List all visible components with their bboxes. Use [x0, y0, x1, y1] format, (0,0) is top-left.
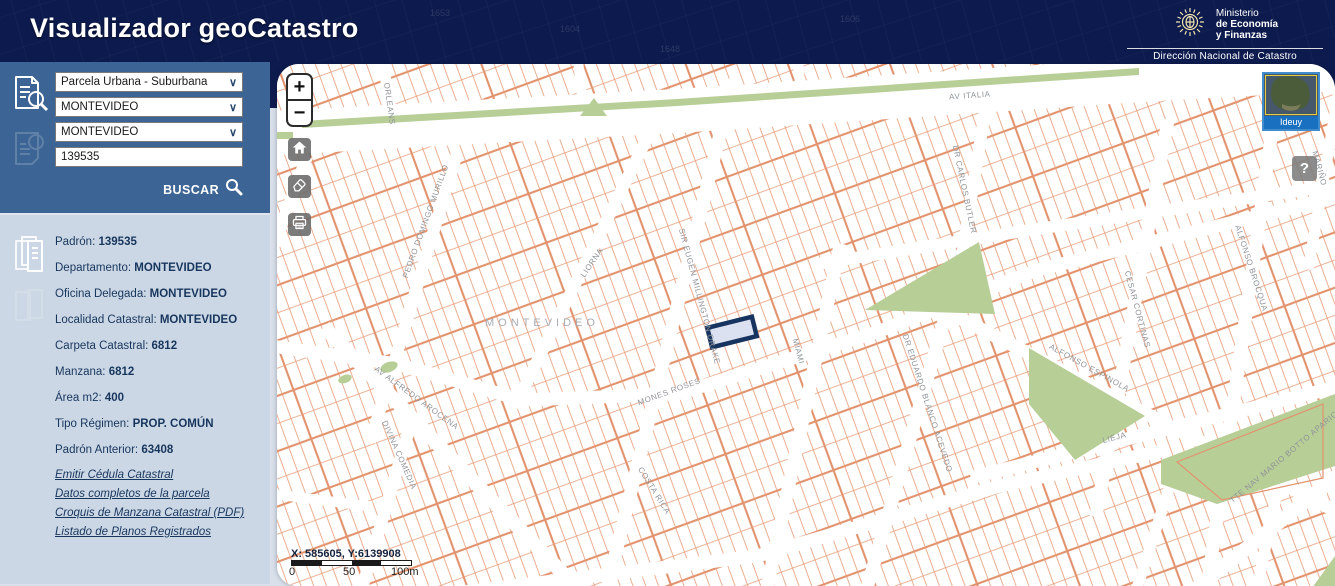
document-search-icon-reflection: [8, 118, 52, 169]
chevron-down-icon: ∨: [229, 76, 237, 89]
help-button[interactable]: ?: [1292, 156, 1317, 181]
home-icon: [291, 139, 308, 161]
info-field: Oficina Delegada: MONTEVIDEO: [55, 281, 262, 307]
parcel-info-panel: Padrón: 139535Departamento: MONTEVIDEOOf…: [0, 215, 270, 584]
info-field: Localidad Catastral: MONTEVIDEO: [55, 307, 262, 333]
padron-input[interactable]: [55, 147, 243, 167]
cadastral-map[interactable]: MONTEVIDEO ORLEANSAV ITALIAPEDRO DOMINGO…: [277, 64, 1335, 586]
info-field: Padrón: 139535: [55, 229, 262, 255]
printer-icon: [291, 214, 308, 236]
eraser-icon: [291, 176, 308, 198]
coordinates-readout: X: 585605, Y:6139908: [291, 548, 401, 560]
logo-separator: [1127, 48, 1323, 49]
ministry-logo-block: Ministerio de Economía y Finanzas Direcc…: [1125, 4, 1325, 62]
parcel-attributes: Padrón: 139535Departamento: MONTEVIDEOOf…: [55, 229, 262, 463]
home-button[interactable]: [288, 138, 311, 161]
parcel-links: Emitir Cédula CatastralDatos completos d…: [55, 466, 262, 542]
chevron-down-icon: ∨: [229, 101, 237, 114]
info-field: Área m2: 400: [55, 385, 262, 411]
zoom-out-button[interactable]: −: [288, 101, 311, 125]
direction-name: Dirección Nacional de Catastro: [1125, 51, 1325, 62]
info-field: Padrón Anterior: 63408: [55, 437, 262, 463]
info-link[interactable]: Listado de Planos Registrados: [55, 523, 262, 542]
city-label: MONTEVIDEO: [485, 317, 599, 329]
print-button[interactable]: [288, 213, 311, 236]
department-select[interactable]: MONTEVIDEO ∨: [55, 97, 243, 117]
zoom-widget: + −: [286, 73, 313, 127]
info-field: Departamento: MONTEVIDEO: [55, 255, 262, 281]
info-link[interactable]: Datos completos de la parcela: [55, 485, 262, 504]
overview-satellite-image: [1264, 74, 1318, 116]
info-field: Manzana: 6812: [55, 359, 262, 385]
uruguay-coat-of-arms-icon: [1172, 4, 1208, 45]
documents-stack-icon-reflection: [10, 281, 54, 326]
locality-value: MONTEVIDEO: [61, 126, 138, 138]
zoom-in-button[interactable]: +: [288, 75, 311, 99]
header-texture-number: 1606: [840, 14, 860, 24]
document-search-icon: [8, 72, 52, 123]
documents-stack-icon: [10, 231, 54, 282]
scale-label-end: 100m: [391, 566, 419, 578]
search-panel: Parcela Urbana - Suburbana ∨ MONTEVIDEO …: [0, 62, 270, 215]
sidebar: Parcela Urbana - Suburbana ∨ MONTEVIDEO …: [0, 62, 270, 586]
scale-label-mid: 50: [343, 566, 355, 578]
info-link[interactable]: Emitir Cédula Catastral: [55, 466, 262, 485]
buscar-button[interactable]: BUSCAR: [55, 178, 243, 201]
chevron-down-icon: ∨: [229, 126, 237, 139]
search-icon: [225, 178, 243, 201]
parcel-type-value: Parcela Urbana - Suburbana: [61, 76, 207, 88]
ministry-name: Ministerio de Economía y Finanzas: [1216, 8, 1278, 41]
overview-extent-box: [1265, 75, 1317, 115]
overview-map[interactable]: Ideuy: [1262, 72, 1320, 131]
info-link[interactable]: Croquis de Manzana Catastral (PDF): [55, 504, 262, 523]
map-container: MONTEVIDEO ORLEANSAV ITALIAPEDRO DOMINGO…: [277, 64, 1335, 586]
clear-selection-button[interactable]: [288, 175, 311, 198]
header-texture-number: 1653: [430, 8, 450, 18]
buscar-label: BUSCAR: [163, 183, 219, 197]
header-texture-number: 1604: [560, 24, 580, 34]
department-value: MONTEVIDEO: [61, 101, 138, 113]
scale-label-start: 0: [289, 566, 295, 578]
info-field: Carpeta Catastral: 6812: [55, 333, 262, 359]
app-header: 1653 1604 1648 1606 Visualizador geoCata…: [0, 0, 1335, 62]
overview-layer-label: Ideuy: [1264, 116, 1318, 129]
header-texture-number: 1648: [660, 44, 680, 54]
scale-bar: 0 50 100m: [291, 560, 431, 578]
parcel-type-select[interactable]: Parcela Urbana - Suburbana ∨: [55, 72, 243, 92]
info-field: Tipo Régimen: PROP. COMÚN: [55, 411, 262, 437]
locality-select[interactable]: MONTEVIDEO ∨: [55, 122, 243, 142]
app-title: Visualizador geoCatastro: [30, 13, 358, 44]
